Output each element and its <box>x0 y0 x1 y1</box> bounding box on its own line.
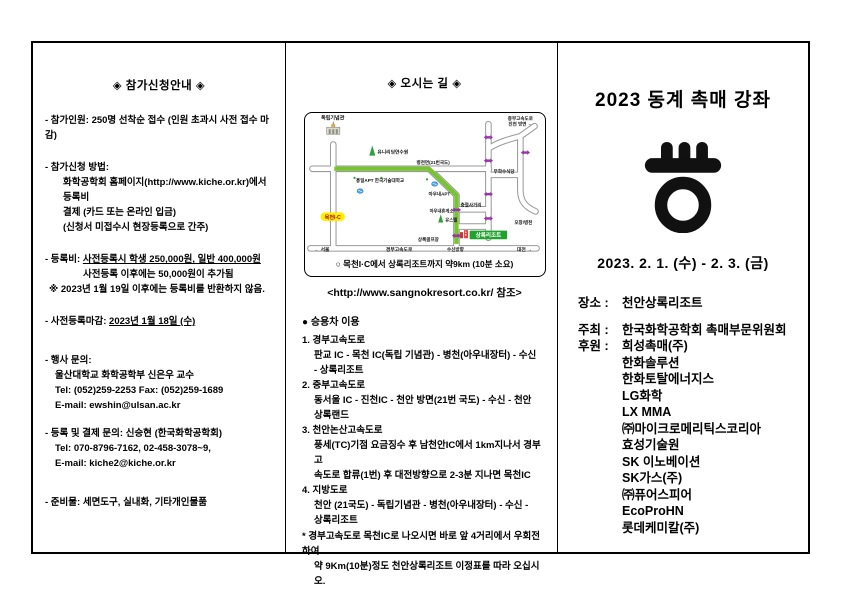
event-contact-phone: Tel: (052)259-2253 Fax: (052)259-1689 <box>45 383 273 398</box>
map-box: 목천I-C 상록리조트 독립기념관 유니리딩연수원 병천면(21번국도) <box>304 112 546 277</box>
fee-amount: 사전등록시 학생 250,000원, 일반 400,000원 <box>83 254 261 265</box>
brochure-page: ◈ 참가신청안내 ◈ - 참가인원: 250명 선착순 접수 (인원 초과시 사… <box>0 0 841 595</box>
fee-para: - 등록비: 사전등록시 학생 250,000원, 일반 400,000원 사전… <box>45 252 273 297</box>
sponsor-item: LG화학 <box>622 388 800 405</box>
sponsor-item: 희성촉매(주) <box>622 338 800 355</box>
junction-label: 충절사거리 <box>460 201 481 208</box>
apply-method-line: 화학공학회 홈페이지(http://www.kiche.or.kr)에서 등록비 <box>45 175 273 205</box>
car-route-title: 3. 천안논산고속도로 <box>302 423 547 438</box>
restaurant-label: 무학수식당 <box>493 168 515 175</box>
sponsor-item: 효성기술원 <box>622 437 800 454</box>
car-route-title: 4. 지방도로 <box>302 483 547 498</box>
car-route-item: 3. 천안논산고속도로 풍세(TC)기점 요금징수 후 남천안IC에서 1km지… <box>302 423 547 483</box>
participants-line: - 참가인원: 250명 선착순 접수 (인원 초과시 사전 접수 마감) <box>45 113 273 143</box>
jungbu-expressway-label: 중부고속도로 <box>507 115 533 122</box>
car-route-title: 1. 경부고속도로 <box>302 333 547 348</box>
title-column: 2023 동계 촉매 강좌 2023. 2. 1. (수) - 2. 3. (금… <box>557 43 808 552</box>
apply-method-para: - 참가신청 방법: 화학공학회 홈페이지(http://www.kiche.o… <box>45 160 273 235</box>
water-icons <box>357 182 438 194</box>
host-value: 한국화학공학회 촉매부문위원회 <box>622 322 800 339</box>
sponsor-list: 희성촉매(주)한화솔루션한화토탈에너지스LG화학LX MMA㈜마이크로메리틱스코… <box>622 338 800 536</box>
event-contact-para: - 행사 문의: 울산대학교 화학공학부 신은우 교수 Tel: (052)25… <box>45 353 273 413</box>
payment-contact-para: - 등록 및 결제 문의: 신승현 (한국화학공학회) Tel: 070-879… <box>45 426 273 471</box>
event-title: 2023 동계 촉매 강좌 <box>566 85 800 112</box>
host-row: 주최 : 한국화학공학회 촉매부문위원회 <box>578 322 800 339</box>
sponsor-row: 후원 : 희성촉매(주)한화솔루션한화토탈에너지스LG화학LX MMA㈜마이크로… <box>578 338 800 536</box>
apply-method-line: (신청서 미접수시 현장등록으로 간주) <box>45 220 273 235</box>
event-dates: 2023. 2. 1. (수) - 2. 3. (금) <box>566 253 800 273</box>
host-label: 주최 : <box>578 322 622 339</box>
car-route-line: 상록랜드 <box>302 408 547 423</box>
car-route-line: 천안 (21국도) - 독립기념관 - 병천(아우내장터) - 수신 - <box>302 498 547 513</box>
directions-column: ◈ 오시는 길 ◈ <box>285 43 557 552</box>
apt-university-label: 흥일APT 한국기술대학교 <box>356 177 405 184</box>
directions-header: ◈ 오시는 길 ◈ <box>302 77 547 92</box>
aunae-apt-label: 아우내APT <box>428 191 450 198</box>
venue-value: 천안상록리조트 <box>622 295 800 312</box>
independence-hall-label: 독립기념관 <box>321 115 345 122</box>
car-note: * 경부고속도로 목천IC로 나오시면 바로 앞 4거리에서 우회전하여 약 9… <box>302 529 547 589</box>
resort-url-note: <http://www.sangnokresort.co.kr/ 참조> <box>302 286 547 301</box>
car-route-line: 동서울 IC - 진천IC - 천안 방면(21번 국도) - 수신 - 천안 <box>302 393 547 408</box>
deadline-para: - 사전등록마감: 2023년 1월 18일 (수) <box>45 314 273 329</box>
sponsor-item: SK 이노베이션 <box>622 454 800 471</box>
registration-column: ◈ 참가신청안내 ◈ - 참가인원: 250명 선착순 접수 (인원 초과시 사… <box>33 43 285 552</box>
sponsor-item: 한화토탈에너지스 <box>622 371 800 388</box>
map-caption: ○ 목천I·C에서 상록리조트까지 약9km (10분 소요) <box>305 257 545 276</box>
deadline-prefix: - 사전등록마감: <box>45 316 109 327</box>
deadline-date: 2023년 1월 18일 (수) <box>109 316 195 327</box>
car-route-line: 풍세(TC)기점 요금징수 후 남천안IC에서 1km지나서 경부고 <box>302 438 547 468</box>
car-route-title: 2. 중부고속도로 <box>302 378 547 393</box>
training-center-label: 유니리딩연수원 <box>377 149 408 156</box>
by-car-heading: ● 승용차 이용 <box>302 315 547 330</box>
golf-course-label: 상록골프장 <box>417 236 439 243</box>
venue-label: 장소 : <box>578 295 622 312</box>
payment-contact-title: - 등록 및 결제 문의: 신승현 (한국화학공학회) <box>45 426 273 441</box>
fee-prefix: - 등록비: <box>45 254 83 265</box>
car-route-line: - 상록리조트 <box>302 363 547 378</box>
car-route-item: 4. 지방도로 천안 (21국도) - 독립기념관 - 병천(아우내장터) - … <box>302 483 547 528</box>
hostel-icon <box>438 214 443 222</box>
sponsor-item: 롯데케미칼(주) <box>622 520 800 537</box>
training-center-icon <box>369 145 375 155</box>
sponsor-item: ㈜퓨어스피어 <box>622 487 800 504</box>
resort-badge-icons <box>460 230 468 238</box>
mokcheon-ic-label: 목천I-C <box>324 214 340 221</box>
sponsor-item: SK가스(주) <box>622 470 800 487</box>
hostel-label: 유스텔 <box>445 217 457 224</box>
rest-area-label: 아우내휴게소 <box>429 207 453 214</box>
event-contact-name: 울산대학교 화학공학부 신은우 교수 <box>45 368 273 383</box>
car-route-line: 속도로 합류(1번) 후 대전방향으로 2-3분 지나면 목천IC <box>302 468 547 483</box>
car-route-item: 1. 경부고속도로 판교 IC - 목천 IC(독립 기념관) - 병천(아우내… <box>302 333 547 378</box>
apply-method-title: - 참가신청 방법: <box>45 160 273 175</box>
event-info: 장소 : 천안상록리조트 주최 : 한국화학공학회 촉매부문위원회 후원 : 희… <box>566 295 800 536</box>
event-contact-email: E-mail: ewshin@ulsan.ac.kr <box>45 398 273 413</box>
fee-surcharge-line: 사전등록 이후에는 50,000원이 추가됨 <box>45 267 273 282</box>
road-surfaces <box>310 124 536 248</box>
car-note-line: * 경부고속도로 목천IC로 나오시면 바로 앞 4거리에서 우회전하여 <box>302 529 547 559</box>
sponsor-label: 후원 : <box>578 338 622 536</box>
registration-header: ◈ 참가신청안내 ◈ <box>45 77 273 93</box>
road-map: 목천I-C 상록리조트 독립기념관 유니리딩연수원 병천면(21번국도) <box>305 113 542 257</box>
sponsor-item: LX MMA <box>622 404 800 421</box>
catalysis-division-logo <box>639 136 727 233</box>
by-car-list: 1. 경부고속도로 판교 IC - 목천 IC(독립 기념관) - 병천(아우내… <box>302 333 547 528</box>
sponsor-item: 한화솔루션 <box>622 355 800 372</box>
apply-method-line: 결제 (카드 또는 온라인 입금) <box>45 205 273 220</box>
brochure-sheet: ◈ 참가신청안내 ◈ - 참가인원: 250명 선착순 접수 (인원 초과시 사… <box>31 41 810 554</box>
sponsor-item: ㈜마이크로메리틱스코리아 <box>622 421 800 438</box>
event-contact-title: - 행사 문의: <box>45 353 273 368</box>
jincheon-direction-label: 진천 방면 ← <box>508 121 532 128</box>
sponsor-item: EcoProHN <box>622 503 800 520</box>
car-route-line: 상록리조트 <box>302 513 547 528</box>
payment-contact-phone: Tel: 070-8796-7162, 02-458-3078~9, <box>45 441 273 456</box>
byeongcheon-road-label: 병천면(21번국도) <box>416 159 450 166</box>
fee-line: - 등록비: 사전등록시 학생 250,000원, 일반 400,000원 <box>45 252 273 267</box>
supplies-line: - 준비물: 세면도구, 실내화, 기타개인물품 <box>45 495 273 510</box>
fee-refund-line: ※ 2023년 1월 19일 이후에는 등록비를 반환하지 않음. <box>45 282 273 297</box>
registration-body: - 참가인원: 250명 선착순 접수 (인원 초과시 사전 접수 마감) - … <box>45 113 273 510</box>
car-note-line: 약 9Km(10분)정도 천안상록리조트 이정표를 따라 오십시오. <box>302 559 547 589</box>
car-route-line: 판교 IC - 목천 IC(독립 기념관) - 병천(아우내장터) - 수신 <box>302 348 547 363</box>
car-route-item: 2. 중부고속도로 동서울 IC - 진천IC - 천안 방면(21번 국도) … <box>302 378 547 423</box>
payment-contact-email: E-mail: kiche2@kiche.or.kr <box>45 456 273 471</box>
ochang-byeongcheon-label: 오창/병천 <box>514 219 532 226</box>
venue-row: 장소 : 천안상록리조트 <box>578 295 800 312</box>
susin-direction-label: 수신방향 <box>447 246 465 253</box>
independence-hall-icon <box>326 122 339 135</box>
